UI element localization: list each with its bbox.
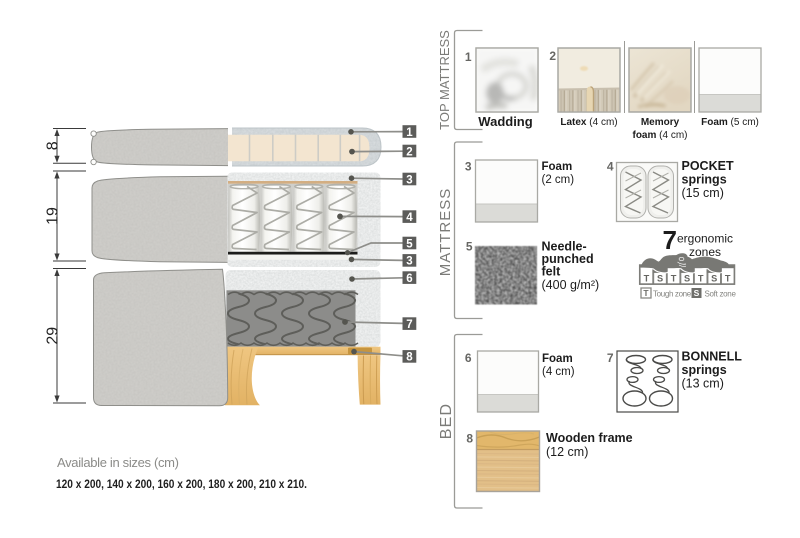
svg-text:7: 7 [663, 225, 677, 255]
svg-text:2: 2 [406, 146, 412, 158]
svg-text:4: 4 [607, 160, 614, 174]
svg-text:7: 7 [607, 351, 614, 365]
svg-text:7: 7 [406, 319, 412, 331]
svg-text:Foam (5 cm): Foam (5 cm) [701, 117, 759, 128]
svg-text:Foam: Foam [542, 353, 573, 365]
svg-text:6: 6 [406, 273, 412, 285]
svg-text:2: 2 [549, 49, 556, 63]
svg-text:(2 cm): (2 cm) [542, 174, 575, 186]
svg-text:foam (4 cm): foam (4 cm) [632, 130, 687, 141]
svg-text:4: 4 [406, 212, 413, 224]
svg-text:T: T [644, 274, 650, 284]
svg-text:6: 6 [465, 351, 472, 365]
svg-text:T: T [643, 288, 649, 298]
svg-text:T: T [671, 274, 677, 284]
svg-text:5: 5 [406, 238, 413, 250]
svg-text:Wooden frame: Wooden frame [546, 431, 633, 445]
svg-text:29: 29 [45, 327, 62, 345]
svg-text:Latex (4 cm): Latex (4 cm) [560, 117, 617, 128]
svg-text:felt: felt [542, 265, 562, 279]
svg-text:T: T [725, 274, 731, 284]
svg-text:T: T [698, 274, 704, 284]
svg-text:MATTRESS: MATTRESS [437, 188, 454, 277]
svg-text:1: 1 [465, 50, 472, 64]
svg-text:BONNELL: BONNELL [682, 350, 743, 364]
svg-text:POCKET: POCKET [682, 159, 734, 173]
svg-text:TOP MATTRESS: TOP MATTRESS [437, 30, 452, 130]
svg-text:ergonomic: ergonomic [677, 232, 733, 246]
svg-text:S: S [684, 274, 690, 284]
svg-text:Tough zone: Tough zone [653, 290, 692, 299]
svg-text:(15 cm): (15 cm) [682, 186, 724, 200]
svg-text:(13 cm): (13 cm) [682, 377, 724, 391]
svg-text:S: S [694, 288, 700, 298]
svg-text:3: 3 [406, 174, 412, 186]
svg-text:Foam: Foam [542, 161, 573, 173]
svg-text:5: 5 [466, 240, 473, 254]
svg-text:8: 8 [466, 432, 473, 446]
svg-text:(400 g/m²): (400 g/m²) [542, 278, 600, 292]
svg-text:3: 3 [465, 160, 472, 174]
svg-text:S: S [711, 274, 717, 284]
svg-text:springs: springs [682, 173, 727, 187]
svg-text:BED: BED [438, 403, 455, 440]
svg-text:S: S [657, 274, 663, 284]
svg-text:Soft zone: Soft zone [705, 290, 737, 299]
svg-text:8: 8 [45, 141, 62, 150]
svg-text:Available in sizes (cm): Available in sizes (cm) [57, 455, 179, 470]
svg-text:springs: springs [682, 363, 727, 377]
svg-text:(4 cm): (4 cm) [542, 366, 575, 378]
svg-text:120 x 200, 140 x 200, 160 x 20: 120 x 200, 140 x 200, 160 x 200, 180 x 2… [56, 477, 307, 491]
svg-text:(12 cm): (12 cm) [546, 445, 588, 459]
svg-text:3: 3 [406, 256, 412, 268]
svg-text:19: 19 [45, 207, 62, 225]
svg-text:8: 8 [406, 352, 413, 364]
svg-text:Memory: Memory [641, 117, 680, 128]
svg-text:1: 1 [406, 127, 413, 139]
svg-text:Wadding: Wadding [478, 114, 532, 129]
